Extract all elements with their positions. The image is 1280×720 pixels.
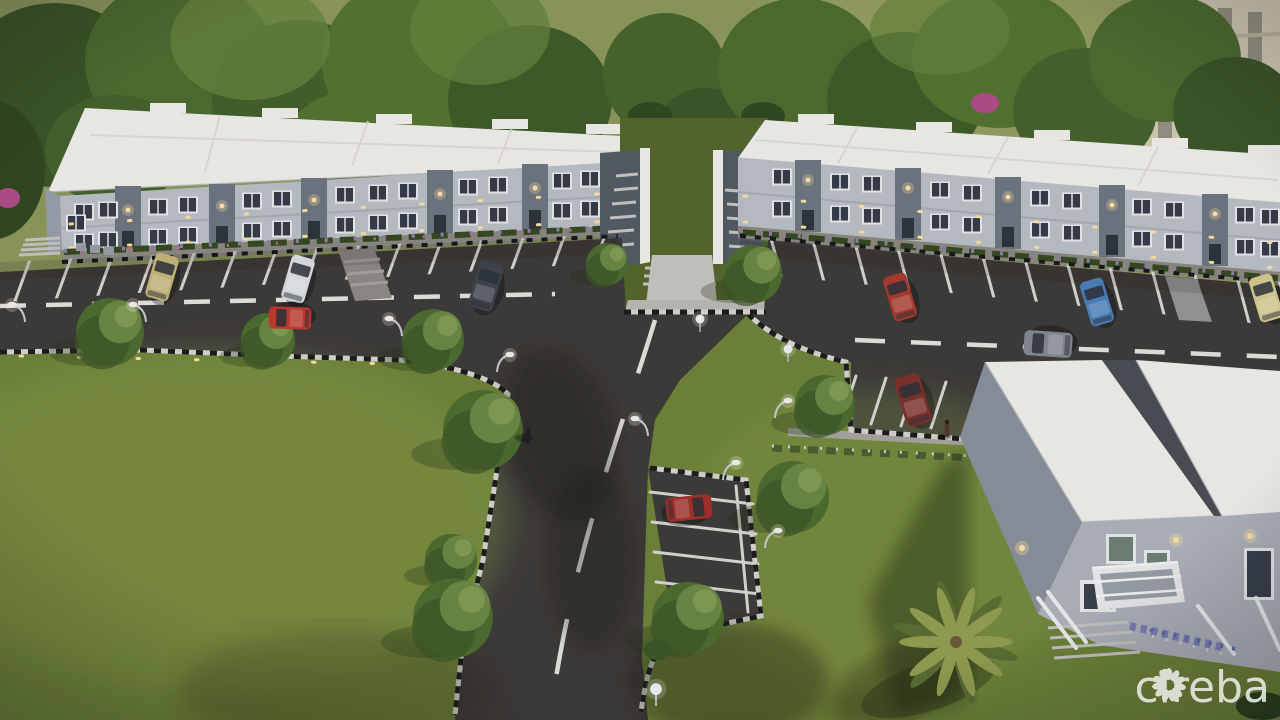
rendering-canvas: cireba (0, 0, 1280, 720)
vignette (0, 0, 1280, 720)
scene-svg (0, 0, 1280, 720)
